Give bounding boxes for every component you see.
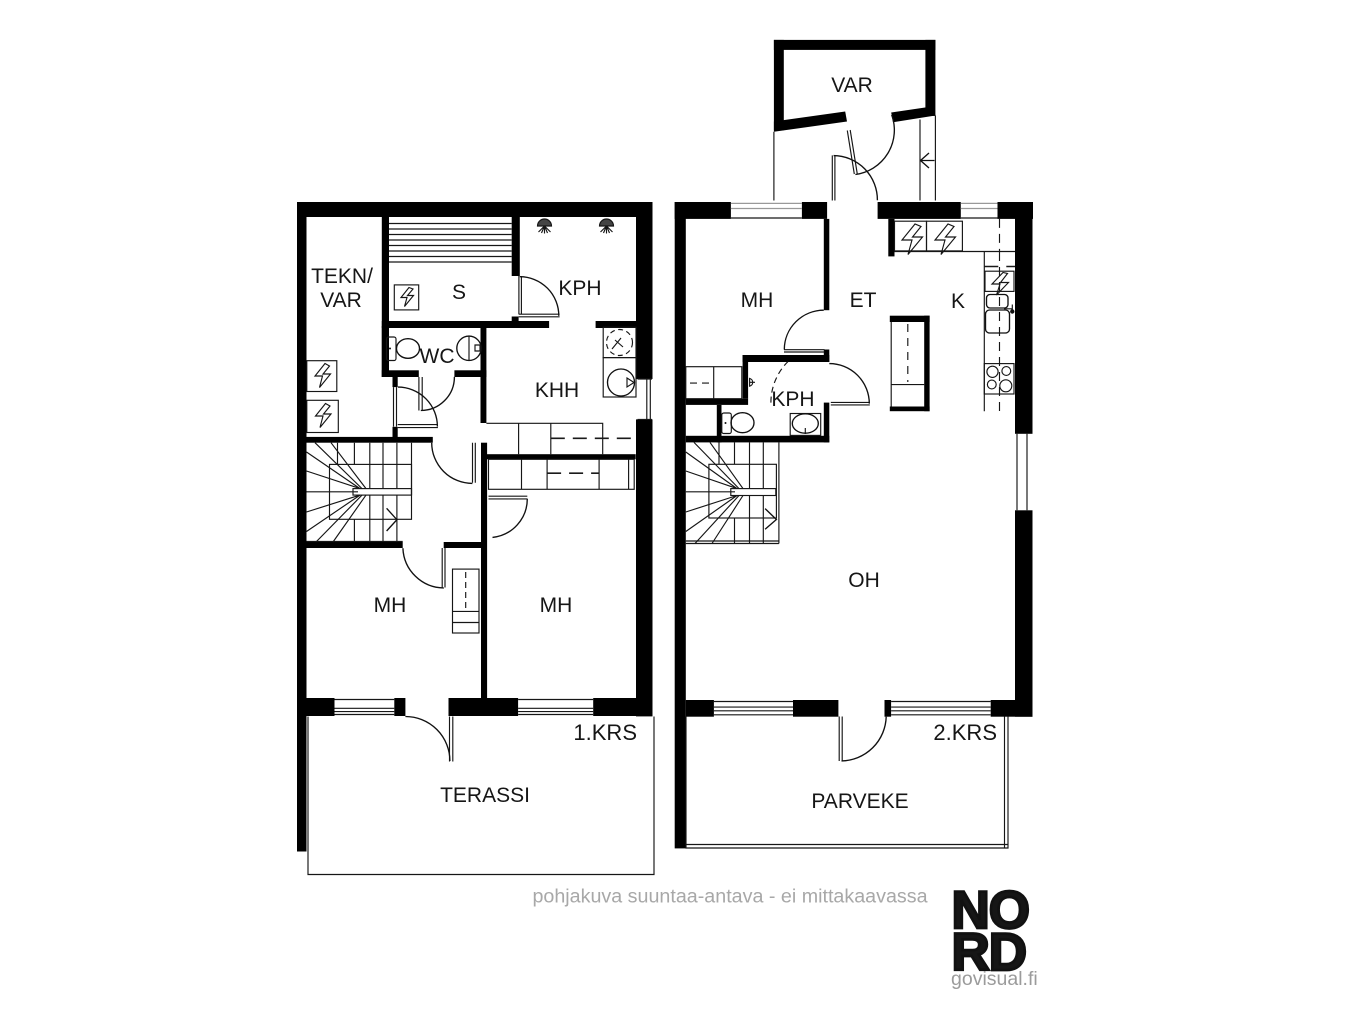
svg-text:K: K [951,290,965,313]
svg-text:VAR: VAR [320,289,362,312]
svg-text:MH: MH [741,289,774,312]
svg-text:TERASSI: TERASSI [440,784,530,807]
svg-text:MH: MH [374,594,407,617]
svg-text:OH: OH [848,569,880,592]
svg-text:MH: MH [540,594,573,617]
svg-text:ET: ET [850,289,877,312]
svg-text:WC: WC [420,345,455,368]
svg-text:pohjakuva suuntaa-antava - ei: pohjakuva suuntaa-antava - ei mittakaava… [532,886,927,908]
svg-text:1.KRS: 1.KRS [573,720,637,745]
svg-text:KHH: KHH [535,379,579,402]
svg-text:KPH: KPH [771,388,814,411]
svg-text:govisual.fi: govisual.fi [951,968,1038,990]
svg-text:PARVEKE: PARVEKE [811,790,908,813]
svg-text:VAR: VAR [831,74,873,97]
svg-text:TEKN/: TEKN/ [311,265,373,288]
svg-text:KPH: KPH [558,277,601,300]
svg-text:2.KRS: 2.KRS [933,720,997,745]
svg-text:S: S [452,281,466,304]
